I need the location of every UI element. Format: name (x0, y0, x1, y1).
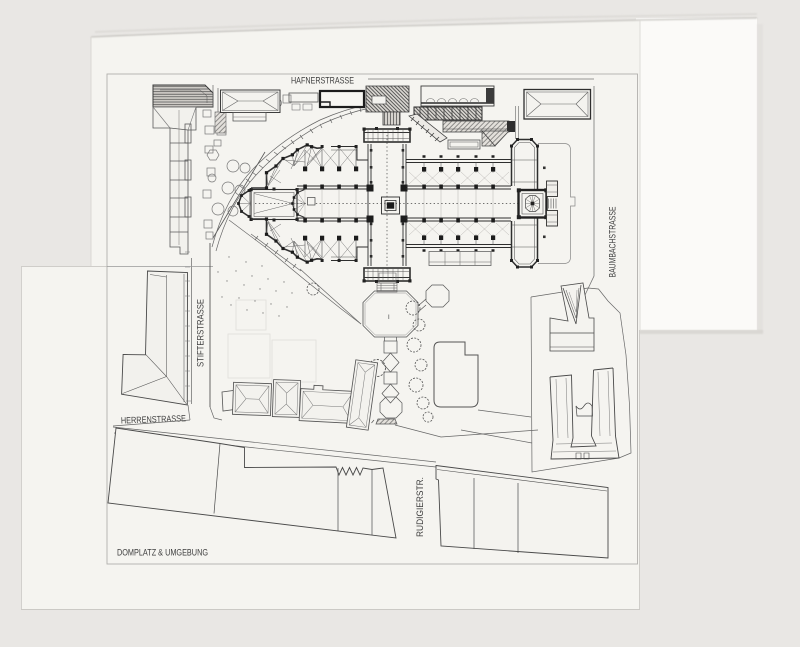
svg-text:HAFNERSTRASSE: HAFNERSTRASSE (291, 76, 354, 86)
svg-text:STIFTERSTRASSE: STIFTERSTRASSE (196, 299, 206, 367)
svg-text:BAUMBACHSTRASSE: BAUMBACHSTRASSE (608, 207, 618, 278)
svg-text:DOMPLATZ & UMGEBUNG: DOMPLATZ & UMGEBUNG (117, 548, 208, 558)
svg-text:RUDIGIERSTR.: RUDIGIERSTR. (415, 477, 425, 537)
